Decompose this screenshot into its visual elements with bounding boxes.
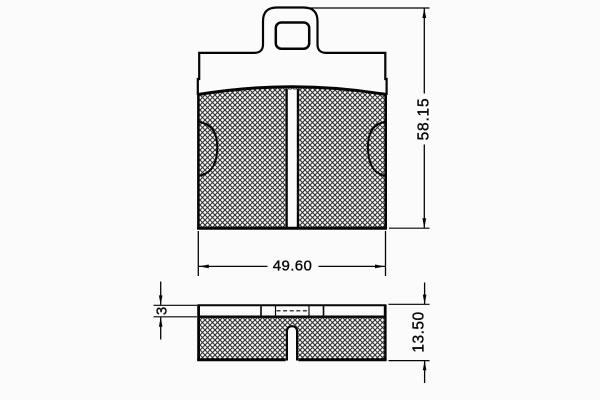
svg-text:49.60: 49.60 <box>273 258 313 275</box>
svg-text:3: 3 <box>153 307 170 315</box>
svg-text:58.15: 58.15 <box>416 98 433 141</box>
svg-text:13.50: 13.50 <box>410 311 427 352</box>
